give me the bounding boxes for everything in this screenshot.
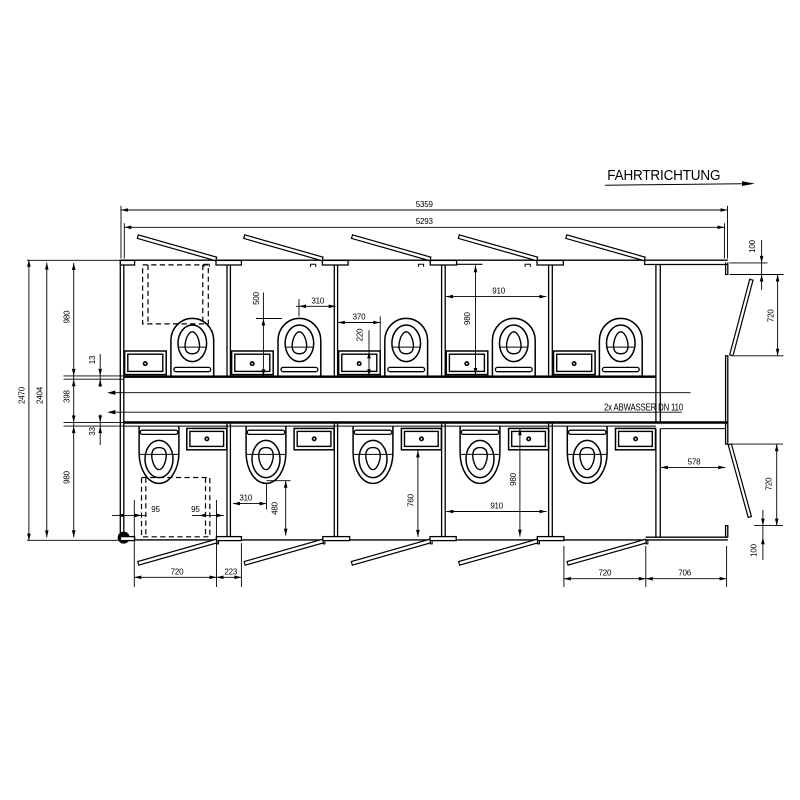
svg-text:578: 578 [688,457,701,466]
svg-text:910: 910 [492,287,505,296]
svg-text:310: 310 [239,494,252,503]
svg-text:720: 720 [765,477,774,490]
svg-text:100: 100 [750,543,759,556]
svg-text:13: 13 [88,355,97,364]
svg-text:223: 223 [224,568,237,577]
svg-text:100: 100 [748,239,757,252]
svg-text:760: 760 [407,493,416,506]
svg-text:95: 95 [151,505,160,514]
svg-text:706: 706 [678,569,691,578]
svg-text:980: 980 [62,310,71,323]
svg-text:2470: 2470 [18,386,27,404]
svg-text:33: 33 [88,427,97,436]
svg-text:720: 720 [171,568,184,577]
svg-text:310: 310 [311,296,324,305]
svg-text:720: 720 [599,569,612,578]
svg-text:370: 370 [353,313,366,322]
svg-text:220: 220 [356,328,365,341]
svg-text:398: 398 [62,389,71,402]
svg-text:95: 95 [191,505,200,514]
svg-text:980: 980 [509,472,518,485]
svg-text:2x ABWASSER DN 110: 2x ABWASSER DN 110 [604,402,683,413]
svg-text:980: 980 [463,311,472,324]
svg-text:2404: 2404 [36,386,45,404]
svg-text:910: 910 [490,501,503,510]
svg-text:480: 480 [271,501,280,514]
svg-text:980: 980 [62,470,71,483]
svg-text:5359: 5359 [416,200,434,209]
svg-text:720: 720 [766,309,775,322]
svg-text:FAHRTRICHTUNG: FAHRTRICHTUNG [607,167,720,184]
svg-text:5293: 5293 [416,217,434,226]
svg-text:500: 500 [252,291,261,304]
